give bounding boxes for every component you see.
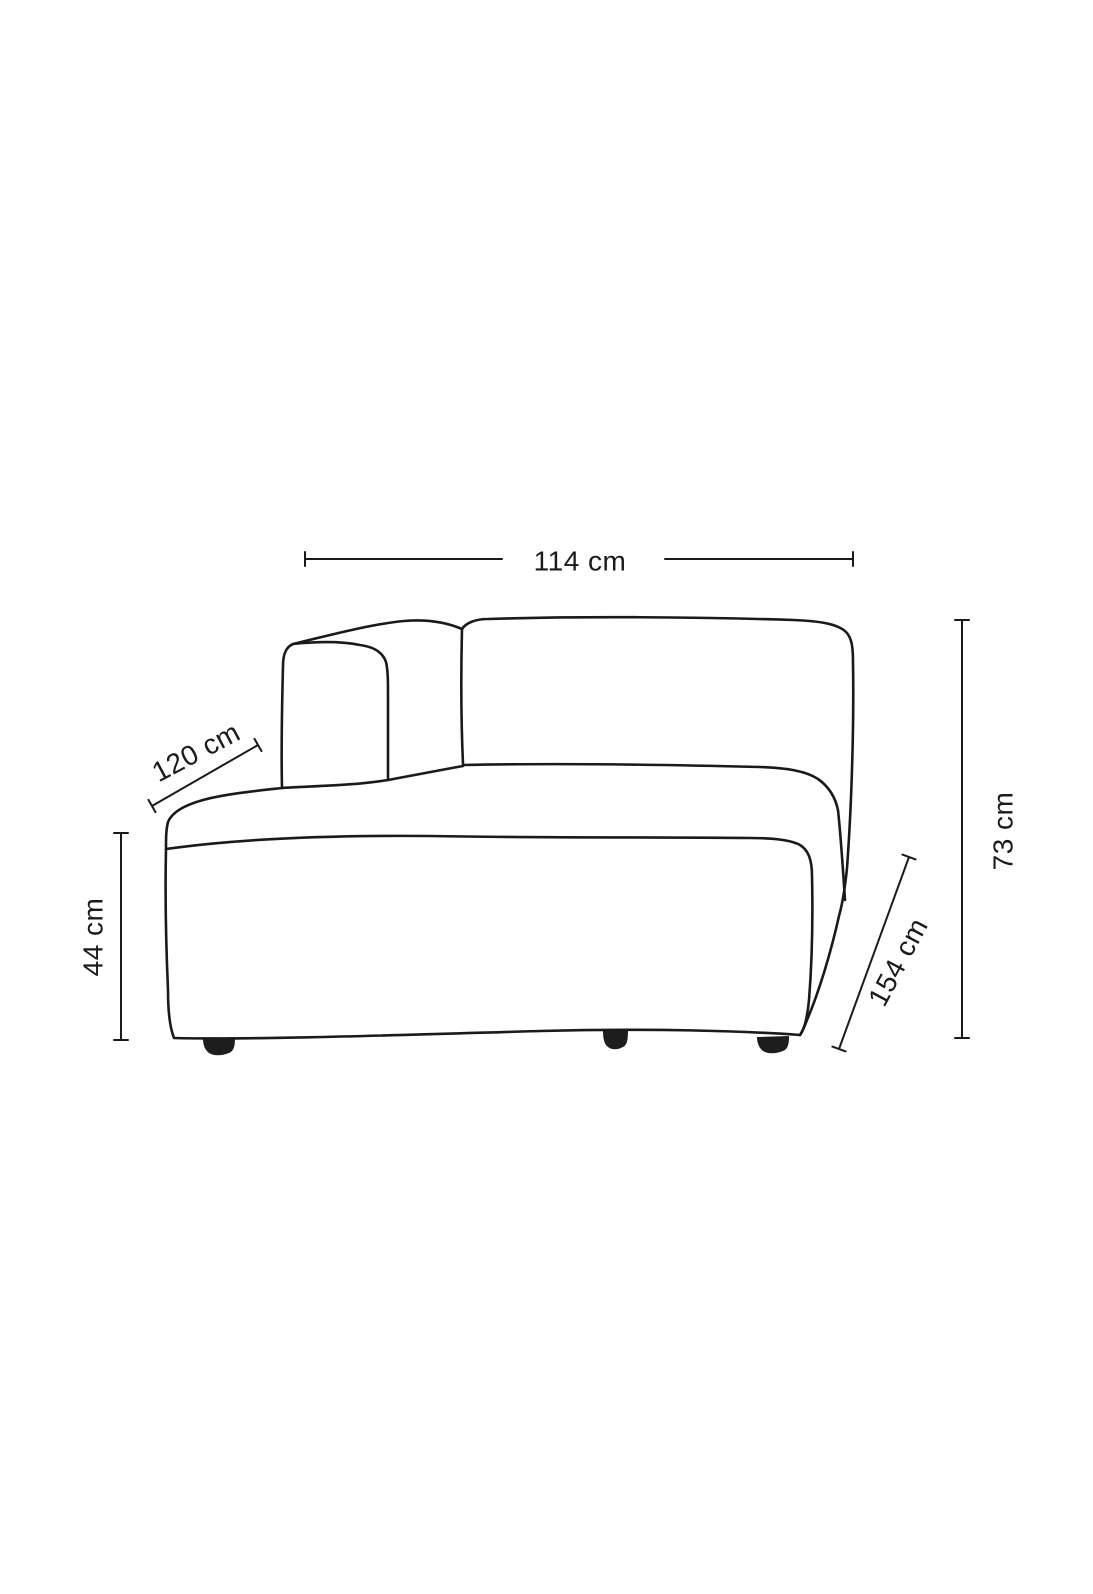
dimension-back-width: 114 cm bbox=[305, 546, 853, 577]
dimension-side-depth-right: 154 cm bbox=[832, 855, 934, 1052]
sofa-dimension-drawing: 114 cm 120 cm 44 cm 154 cm 73 cm bbox=[0, 0, 1093, 1594]
dimension-label-total-height: 73 cm bbox=[988, 792, 1019, 871]
dimension-line-total-height bbox=[955, 620, 969, 1038]
dimension-chaise-depth-left: 120 cm bbox=[147, 716, 262, 812]
sofa-front-panel-seam bbox=[166, 836, 812, 1035]
dimension-label-back-width: 114 cm bbox=[534, 546, 627, 577]
sofa-leg-right bbox=[757, 1036, 789, 1053]
sofa-line-drawing-icon bbox=[166, 617, 854, 1055]
dimension-label-chaise-depth-left: 120 cm bbox=[147, 716, 245, 788]
dimension-label-seat-height: 44 cm bbox=[78, 898, 109, 977]
sofa-backrest-left-edge bbox=[461, 629, 463, 764]
dimension-seat-height: 44 cm bbox=[78, 833, 129, 1040]
dimension-label-side-depth-right: 154 cm bbox=[862, 913, 934, 1011]
dimension-line-seat-height bbox=[114, 833, 128, 1040]
sofa-leg-middle bbox=[603, 1030, 628, 1049]
sofa-seat-silhouette bbox=[166, 766, 800, 1038]
sofa-armrest-inner bbox=[293, 642, 388, 780]
sofa-backrest-outline bbox=[462, 617, 853, 1035]
dimension-total-height: 73 cm bbox=[955, 620, 1019, 1038]
sofa-seat-back-edge bbox=[463, 764, 845, 900]
sofa-leg-left bbox=[203, 1037, 235, 1055]
sofa-armrest-outer bbox=[282, 620, 462, 788]
dimension-diagram: 114 cm 120 cm 44 cm 154 cm 73 cm bbox=[0, 0, 1093, 1594]
